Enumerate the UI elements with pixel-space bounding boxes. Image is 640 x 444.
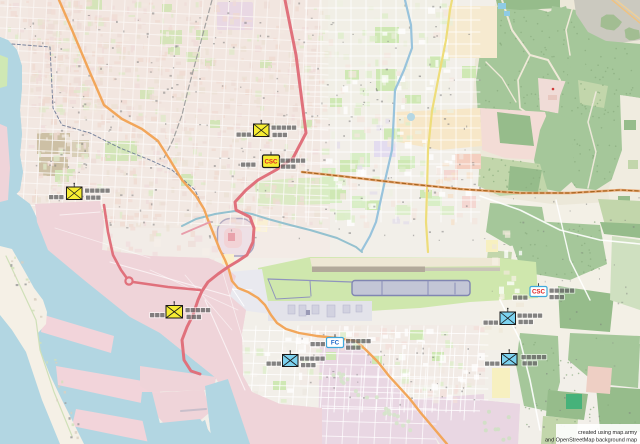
svg-text:and OpenStreetMap background m: and OpenStreetMap background map: [545, 438, 637, 444]
svg-text:CSC: CSC: [532, 289, 546, 296]
svg-text:created using map.army: created using map.army: [578, 430, 637, 436]
svg-text:CSC: CSC: [264, 158, 278, 165]
svg-text:FC: FC: [331, 340, 340, 347]
